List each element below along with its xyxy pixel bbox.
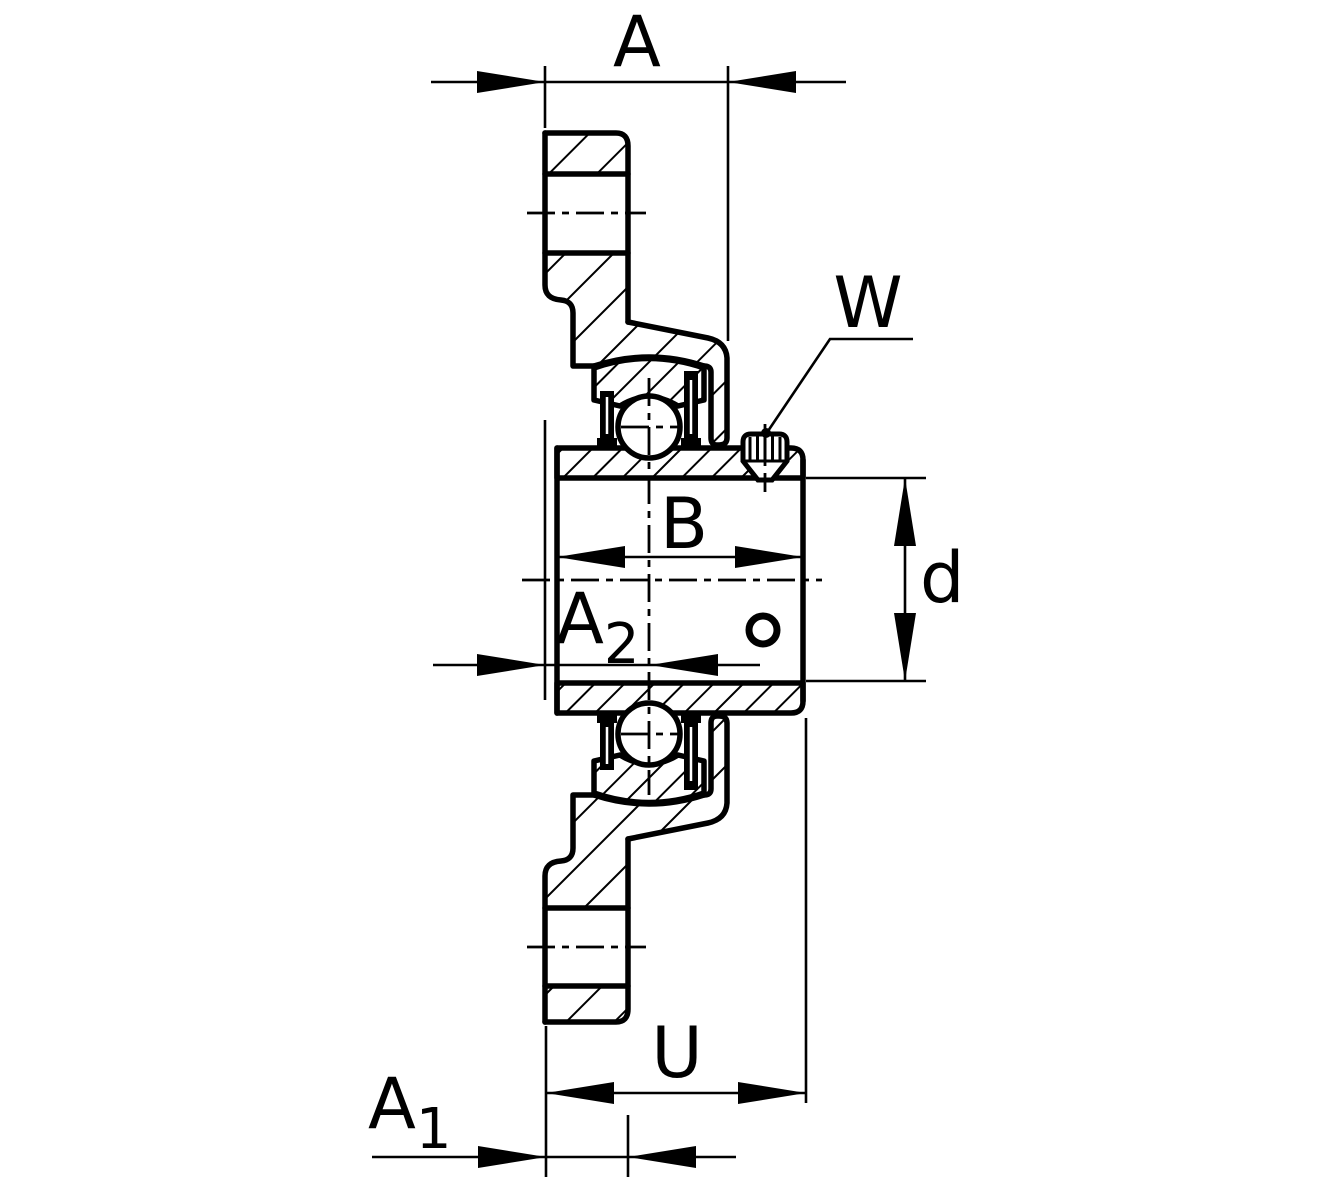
dim-label-A1: A1 bbox=[368, 1063, 452, 1162]
dimension-d bbox=[894, 478, 916, 681]
dim-label-W: W bbox=[833, 262, 902, 344]
dim-label-A: A bbox=[613, 1, 661, 83]
flanged-bearing-unit-section-drawing: A W B d U A2 A1 bbox=[0, 0, 1330, 1200]
sleeve-hole bbox=[749, 616, 777, 644]
dimension-labels: A W B d U A2 A1 bbox=[368, 1, 964, 1162]
dimensions bbox=[372, 66, 926, 1177]
technical-drawing-page: A W B d U A2 A1 bbox=[0, 0, 1330, 1200]
dim-label-U: U bbox=[651, 1012, 702, 1094]
dim-label-A2: A2 bbox=[556, 578, 640, 677]
leader-W bbox=[761, 339, 913, 438]
dim-label-B: B bbox=[660, 483, 708, 565]
dim-label-d: d bbox=[920, 537, 964, 619]
sleeve-lower-band-fill bbox=[557, 683, 803, 713]
